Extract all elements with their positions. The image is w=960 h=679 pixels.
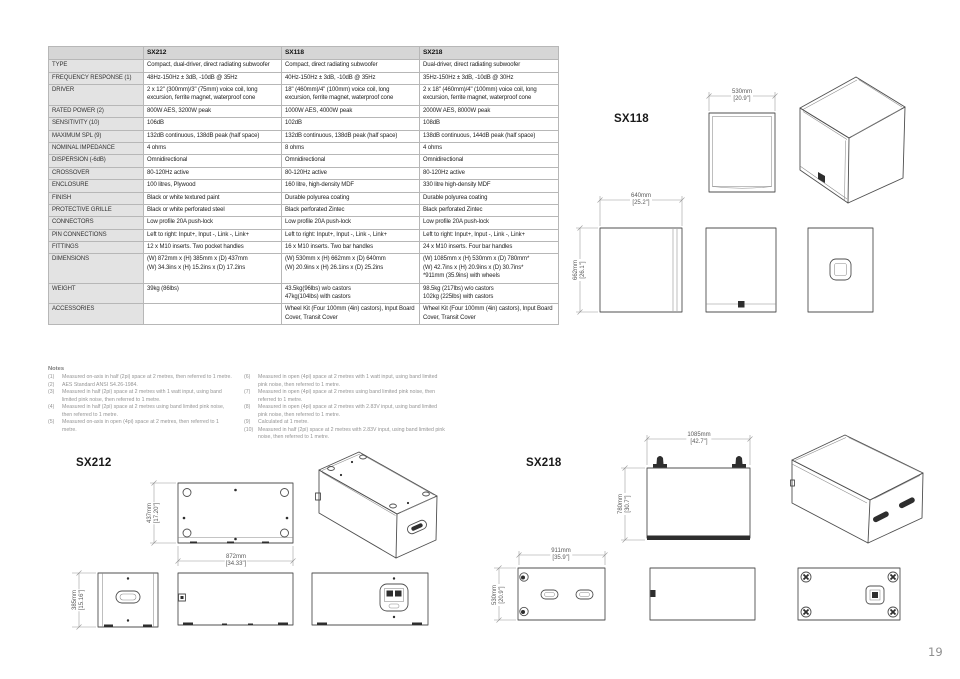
- note-number: (9): [244, 419, 258, 427]
- note-number: (4): [48, 404, 62, 419]
- note-item: (1)Measured on-axis in half (2pi) space …: [48, 374, 232, 382]
- spec-cell: 108dB: [420, 118, 559, 130]
- spec-cell: 2 x 12" (300mm)/3" (75mm) voice coil, lo…: [144, 85, 282, 106]
- table-row: FITTINGS12 x M10 inserts. Two pocket han…: [49, 242, 559, 254]
- note-number: (6): [244, 374, 258, 389]
- spec-row-label: CONNECTORS: [49, 217, 144, 229]
- sx212-label: SX212: [76, 457, 112, 469]
- spec-cell: 40Hz-150Hz ± 3dB, -10dB @ 35Hz: [282, 72, 420, 84]
- note-text: Measured on-axis in half (2pi) space at …: [62, 374, 232, 382]
- spec-cell: 43.5kg(96lbs) w/o castors 47kg(104lbs) w…: [282, 283, 420, 304]
- col-header-sx218: SX218: [420, 47, 559, 60]
- note-item: (9)Calculated at 1 metre.: [244, 419, 448, 427]
- spec-row-label: FINISH: [49, 192, 144, 204]
- spec-row-label: DISPERSION (-6dB): [49, 155, 144, 167]
- note-item: (5)Measured on-axis in open (4pi) space …: [48, 419, 232, 434]
- spec-cell: 132dB continuous, 138dB peak (half space…: [144, 130, 282, 142]
- notes-column-right: (6)Measured in open (4pi) space at 2 met…: [244, 374, 448, 442]
- sx118-width-dim-label: 530mm [20.9"]: [731, 89, 753, 103]
- note-text: Calculated at 1 metre.: [258, 419, 448, 427]
- spec-row-label: TYPE: [49, 60, 144, 72]
- sx212-depth-dim-label: 437mm [17.20"]: [147, 502, 161, 524]
- spec-cell: Low profile 20A push-lock: [144, 217, 282, 229]
- table-row: DISPERSION (-6dB)OmnidirectionalOmnidire…: [49, 155, 559, 167]
- sx118-isometric-view: [800, 77, 905, 203]
- notes-section: Notes (1)Measured on-axis in half (2pi) …: [48, 366, 458, 442]
- spec-cell: [144, 304, 282, 325]
- note-item: (10)Measured in half (2pi) space at 2 me…: [244, 427, 448, 442]
- spec-cell: 2 x 18" (460mm)/4" (100mm) voice coil, l…: [420, 85, 559, 106]
- spec-cell: 98.5kg (217lbs) w/o castors 102kg (225lb…: [420, 283, 559, 304]
- spec-cell: Omnidirectional: [144, 155, 282, 167]
- note-number: (10): [244, 427, 258, 442]
- note-number: (7): [244, 389, 258, 404]
- note-text: Measured in open (4pi) space at 2 metres…: [258, 374, 448, 389]
- note-number: (1): [48, 374, 62, 382]
- table-row: FREQUENCY RESPONSE (1)48Hz-150Hz ± 3dB, …: [49, 72, 559, 84]
- sx218-top-view: [647, 456, 750, 540]
- table-row: CROSSOVER80-120Hz active80-120Hz active8…: [49, 167, 559, 179]
- table-row: DIMENSIONS(W) 872mm x (H) 385mm x (D) 43…: [49, 254, 559, 283]
- table-row: SENSITIVITY (10)106dB102dB108dB: [49, 118, 559, 130]
- spec-cell: 800W AES, 3200W peak: [144, 105, 282, 117]
- sx118-label: SX118: [614, 113, 649, 125]
- note-item: (6)Measured in open (4pi) space at 2 met…: [244, 374, 448, 389]
- note-item: (8)Measured in open (4pi) space at 2 met…: [244, 404, 448, 419]
- sx118-depth-dim-label: 640mm [25.2"]: [630, 193, 652, 207]
- spec-cell: 35Hz-150Hz ± 3dB, -10dB @ 30Hz: [420, 72, 559, 84]
- spec-cell: 102dB: [282, 118, 420, 130]
- note-text: Measured in half (2pi) space at 2 metres…: [258, 427, 448, 442]
- spec-cell: Wheel Kit (Four 100mm (4in) castors), In…: [282, 304, 420, 325]
- spec-cell: Low profile 20A push-lock: [420, 217, 559, 229]
- spec-row-label: FREQUENCY RESPONSE (1): [49, 72, 144, 84]
- page-number: 19: [928, 645, 943, 659]
- sx118-front-view: [709, 113, 775, 192]
- table-row: ENCLOSURE100 litres, Plywood160 litre, h…: [49, 180, 559, 192]
- spec-cell: Wheel Kit (Four 100mm (4in) castors), In…: [420, 304, 559, 325]
- table-row: NOMINAL IMPEDANCE4 ohms8 ohms4 ohms: [49, 142, 559, 154]
- spec-cell: 24 x M10 inserts. Four bar handles: [420, 242, 559, 254]
- spec-cell: Durable polyurea coating: [420, 192, 559, 204]
- note-number: (8): [244, 404, 258, 419]
- sx212-top-view: [178, 483, 293, 544]
- sx218-side-view: [518, 568, 605, 620]
- table-row: RATED POWER (2)800W AES, 3200W peak1000W…: [49, 105, 559, 117]
- spec-cell: 80-120Hz active: [420, 167, 559, 179]
- spec-row-label: ENCLOSURE: [49, 180, 144, 192]
- notes-column-left: (1)Measured on-axis in half (2pi) space …: [48, 374, 232, 442]
- spec-cell: 18" (460mm)/4" (100mm) voice coil, long …: [282, 85, 420, 106]
- spec-cell: Omnidirectional: [420, 155, 559, 167]
- spec-cell: Durable polyurea coating: [282, 192, 420, 204]
- notes-title: Notes: [48, 366, 458, 372]
- sx218-isometric-view: [791, 435, 924, 543]
- col-header-sx212: SX212: [144, 47, 282, 60]
- sx118-rear-view: [808, 228, 873, 312]
- spec-row-label: RATED POWER (2): [49, 105, 144, 117]
- spec-row-label: WEIGHT: [49, 283, 144, 304]
- sx218-label: SX218: [526, 457, 562, 469]
- sx118-front-view-small: [706, 228, 776, 312]
- sx218-front-view: [650, 568, 755, 620]
- spec-cell: Black perforated Zintec: [420, 204, 559, 216]
- table-row: DRIVER2 x 12" (300mm)/3" (75mm) voice co…: [49, 85, 559, 106]
- table-row: WEIGHT39kg (86lbs)43.5kg(96lbs) w/o cast…: [49, 283, 559, 304]
- table-row: PROTECTIVE GRILLEBlack or white perforat…: [49, 204, 559, 216]
- note-item: (4)Measured in half (2pi) space at 2 met…: [48, 404, 232, 419]
- note-number: (5): [48, 419, 62, 434]
- spec-row-label: FITTINGS: [49, 242, 144, 254]
- sx218-width-dim-label: 1085mm [42.7"]: [686, 432, 711, 446]
- spec-cell: Compact, direct radiating subwoofer: [282, 60, 420, 72]
- spec-cell: Black or white textured paint: [144, 192, 282, 204]
- spec-cell: 12 x M10 inserts. Two pocket handles: [144, 242, 282, 254]
- table-header-row: SX212 SX118 SX218: [49, 47, 559, 60]
- col-header-sx118: SX118: [282, 47, 420, 60]
- spec-row-label: DIMENSIONS: [49, 254, 144, 283]
- spec-cell: 138dB continuous, 144dB peak (half space…: [420, 130, 559, 142]
- spec-cell: Left to right: Input+, Input -, Link -, …: [144, 229, 282, 241]
- datasheet-page: SX212 SX118 SX218 TYPECompact, dual-driv…: [0, 0, 960, 679]
- spec-cell: 48Hz-150Hz ± 3dB, -10dB @ 35Hz: [144, 72, 282, 84]
- sx212-drawings: [72, 452, 437, 630]
- sx212-width-dim-label: 872mm [34.33"]: [225, 554, 247, 568]
- spec-cell: 2000W AES, 8000W peak: [420, 105, 559, 117]
- sx212-height-dim-label: 385mm [15.16"]: [72, 589, 86, 611]
- sx218-depth-dim-label: 911mm [35.9"]: [550, 548, 572, 562]
- note-text: Measured on-axis in open (4pi) space at …: [62, 419, 232, 434]
- spec-row-label: PROTECTIVE GRILLE: [49, 204, 144, 216]
- spec-row-label: NOMINAL IMPEDANCE: [49, 142, 144, 154]
- table-row: PIN CONNECTIONSLeft to right: Input+, In…: [49, 229, 559, 241]
- spec-cell: 106dB: [144, 118, 282, 130]
- spec-row-label: PIN CONNECTIONS: [49, 229, 144, 241]
- spec-cell: (W) 1085mm x (H) 530mm x (D) 780mm* (W) …: [420, 254, 559, 283]
- table-row: CONNECTORSLow profile 20A push-lockLow p…: [49, 217, 559, 229]
- note-item: (7)Measured in open (4pi) space at 2 met…: [244, 389, 448, 404]
- spec-cell: 39kg (86lbs): [144, 283, 282, 304]
- note-text: Measured in open (4pi) space at 2 metres…: [258, 404, 448, 419]
- spec-cell: Omnidirectional: [282, 155, 420, 167]
- spec-row-label: ACCESSORIES: [49, 304, 144, 325]
- sx118-side-view: [600, 228, 682, 312]
- spec-cell: Left to right: Input+, Input -, Link -, …: [282, 229, 420, 241]
- spec-row-label: MAXIMUM SPL (9): [49, 130, 144, 142]
- table-row: TYPECompact, dual-driver, direct radiati…: [49, 60, 559, 72]
- spec-cell: 4 ohms: [420, 142, 559, 154]
- table-row: MAXIMUM SPL (9)132dB continuous, 138dB p…: [49, 130, 559, 142]
- sx212-rear-view: [312, 573, 428, 625]
- note-text: AES Standard ANSI S4.26-1984.: [62, 382, 232, 390]
- table-row: FINISHBlack or white textured paintDurab…: [49, 192, 559, 204]
- note-text: Measured in half (2pi) space at 2 metres…: [62, 404, 232, 419]
- spec-cell: 16 x M10 inserts. Two bar handles: [282, 242, 420, 254]
- note-number: (2): [48, 382, 62, 390]
- note-text: Measured in open (4pi) space at 2 metres…: [258, 389, 448, 404]
- spec-row-label: DRIVER: [49, 85, 144, 106]
- spec-cell: Dual-driver, direct radiating subwoofer: [420, 60, 559, 72]
- spec-cell: 330 litre high-density MDF: [420, 180, 559, 192]
- spec-row-label: SENSITIVITY (10): [49, 118, 144, 130]
- spec-cell: 8 ohms: [282, 142, 420, 154]
- sx212-front-view: [178, 573, 293, 625]
- col-header-blank: [49, 47, 144, 60]
- spec-cell: 80-120Hz active: [282, 167, 420, 179]
- spec-row-label: CROSSOVER: [49, 167, 144, 179]
- note-text: Measured in half (2pi) space at 2 metres…: [62, 389, 232, 404]
- spec-cell: Left to right: Input+, Input -, Link -, …: [420, 229, 559, 241]
- note-item: (3)Measured in half (2pi) space at 2 met…: [48, 389, 232, 404]
- spec-table: SX212 SX118 SX218 TYPECompact, dual-driv…: [48, 46, 559, 325]
- sx218-rear-view: [798, 568, 900, 620]
- sx212-isometric-view: [316, 452, 438, 558]
- spec-cell: Compact, dual-driver, direct radiating s…: [144, 60, 282, 72]
- sx218-height-dim-label: 780mm [30.7"]: [618, 493, 632, 515]
- spec-cell: (W) 872mm x (H) 385mm x (D) 437mm (W) 34…: [144, 254, 282, 283]
- spec-cell: (W) 530mm x (H) 662mm x (D) 640mm (W) 20…: [282, 254, 420, 283]
- sx212-side-view: [98, 573, 158, 627]
- spec-cell: 132dB continuous, 138dB peak (half space…: [282, 130, 420, 142]
- spec-cell: Black perforated Zintec: [282, 204, 420, 216]
- spec-cell: Black or white perforated steel: [144, 204, 282, 216]
- note-number: (3): [48, 389, 62, 404]
- table-row: ACCESSORIESWheel Kit (Four 100mm (4in) c…: [49, 304, 559, 325]
- spec-cell: 4 ohms: [144, 142, 282, 154]
- sx218-side-height-dim-label: 530mm [20.9"]: [492, 584, 506, 606]
- sx118-height-dim-label: 662mm [26.1"]: [573, 259, 587, 281]
- spec-cell: 1000W AES, 4000W peak: [282, 105, 420, 117]
- note-item: (2)AES Standard ANSI S4.26-1984.: [48, 382, 232, 390]
- spec-cell: 160 litre, high-density MDF: [282, 180, 420, 192]
- spec-cell: 80-120Hz active: [144, 167, 282, 179]
- spec-cell: 100 litres, Plywood: [144, 180, 282, 192]
- spec-cell: Low profile 20A push-lock: [282, 217, 420, 229]
